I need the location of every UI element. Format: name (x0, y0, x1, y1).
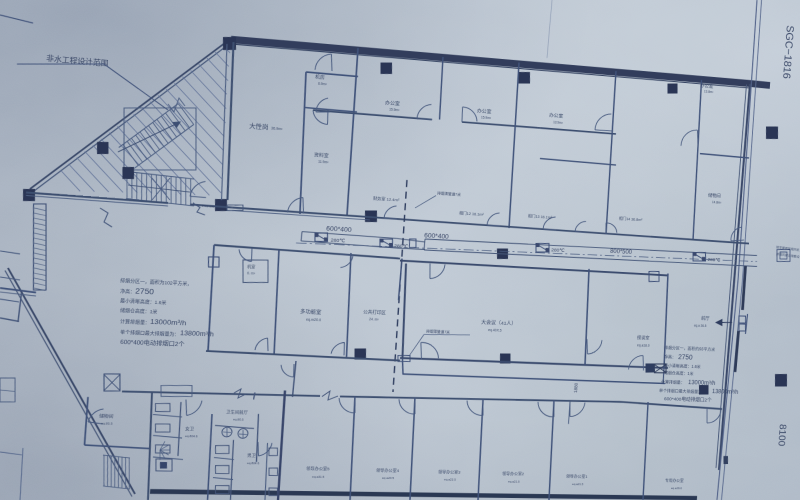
svg-text:机室: 机室 (247, 263, 256, 269)
svg-text:储物间: 储物间 (99, 413, 114, 420)
svg-text:接至屋面排烟风机: 接至屋面排烟风机 (776, 245, 800, 253)
svg-text:卫生间前厅: 卫生间前厅 (226, 409, 249, 416)
svg-text:eq.m20.0: eq.m20.0 (306, 318, 321, 322)
svg-text:大性岗: 大性岗 (249, 121, 269, 131)
svg-text:13000m³/h: 13000m³/h (150, 317, 187, 327)
svg-text:办公室: 办公室 (549, 111, 564, 119)
svg-text:领导办公室4: 领导办公室4 (376, 467, 400, 474)
svg-text:大会议（41人）: 大会议（41人） (481, 318, 517, 327)
svg-text:600*400: 600*400 (424, 233, 449, 241)
svg-text:280℃: 280℃ (394, 243, 409, 249)
svg-text:最小清晰高度：1.6米: 最小清晰高度：1.6米 (120, 298, 167, 307)
svg-text:储烟仓高度：1米: 储烟仓高度：1米 (664, 370, 694, 377)
svg-text:SGC−1816: SGC−1816 (781, 25, 796, 80)
svg-text:eq.804.6: eq.804.6 (247, 461, 260, 465)
svg-text:600*400电动排烟口2个: 600*400电动排烟口2个 (120, 338, 185, 348)
svg-text:eq.a23.5: eq.a23.5 (444, 478, 456, 482)
svg-text:13800m³/h: 13800m³/h (180, 330, 214, 338)
svg-text:6.9m²: 6.9m² (318, 82, 328, 87)
svg-text:280℃: 280℃ (707, 258, 720, 264)
svg-text:eq.a 36.5: eq.a 36.5 (694, 324, 707, 328)
svg-text:计算排烟量：: 计算排烟量： (661, 379, 685, 386)
svg-text:领导办公室2: 领导办公室2 (502, 470, 525, 477)
svg-text:13800m³/h: 13800m³/h (712, 389, 739, 396)
svg-text:eq.a21.5: eq.a21.5 (572, 482, 584, 486)
svg-text:非水工程设计范围: 非水工程设计范围 (46, 54, 109, 68)
svg-text:办公室: 办公室 (385, 98, 400, 107)
svg-text:相门12 16.1m²: 相门12 16.1m² (459, 210, 485, 217)
svg-text:13.9m²: 13.9m² (553, 120, 564, 124)
svg-text:13.8m²: 13.8m² (704, 90, 714, 94)
svg-text:领导办公室3: 领导办公室3 (438, 468, 461, 475)
svg-text:8100: 8100 (776, 424, 787, 446)
svg-text:男卫: 男卫 (247, 453, 257, 459)
svg-text:eq.80.5: eq.80.5 (101, 422, 113, 426)
svg-text:eq.80.5: eq.80.5 (233, 418, 244, 422)
svg-text:排烟分区一，面积约93平方米: 排烟分区一，面积约93平方米 (664, 345, 716, 353)
svg-text:接谈室: 接谈室 (637, 335, 650, 342)
svg-text:15.9m²: 15.9m² (481, 116, 492, 121)
svg-text:36.9m²: 36.9m² (271, 127, 283, 132)
svg-text:eq.40X.5: eq.40X.5 (488, 328, 502, 332)
svg-text:排烟清管道7米: 排烟清管道7米 (437, 191, 461, 197)
svg-text:储烟仓高度：1米: 储烟仓高度：1米 (120, 307, 158, 315)
svg-text:专用办公室: 专用办公室 (665, 477, 685, 484)
svg-text:公共打印区: 公共打印区 (363, 309, 387, 317)
svg-text:排烟薄管道7米: 排烟薄管道7米 (426, 329, 450, 335)
svg-text:24. m²: 24. m² (369, 318, 379, 322)
svg-text:领导办公室5: 领导办公室5 (306, 465, 331, 472)
svg-text:最小清晰高度：1.6米: 最小清晰高度：1.6米 (664, 362, 701, 370)
svg-text:计算排烟量：: 计算排烟量： (120, 318, 150, 326)
svg-text:800*500: 800*500 (610, 248, 633, 256)
svg-text:2750: 2750 (678, 353, 693, 362)
svg-text:相门13 16.1m²: 相门13 16.1m² (528, 212, 553, 219)
svg-text:6. m²: 6. m² (247, 271, 256, 275)
svg-text:280℃: 280℃ (330, 238, 345, 244)
svg-text:前厅: 前厅 (701, 315, 710, 322)
svg-text:排烟风管沿墙敷设: 排烟风管沿墙敷设 (776, 252, 800, 259)
svg-text:排烟分区一，面积为102平方米，: 排烟分区一，面积为102平方米， (120, 277, 192, 287)
svg-text:机房: 机房 (315, 73, 325, 80)
svg-text:净高：: 净高： (664, 354, 676, 361)
svg-text:储物间: 储物间 (708, 192, 721, 199)
svg-text:280℃: 280℃ (551, 248, 565, 254)
svg-text:14.8m²: 14.8m² (712, 200, 722, 204)
svg-text:1880: 1880 (573, 383, 579, 393)
svg-text:财务室 12.4m²: 财务室 12.4m² (373, 195, 400, 203)
svg-text:15.9m²: 15.9m² (389, 108, 400, 113)
svg-text:办公室: 办公室 (477, 106, 492, 114)
svg-text:领导办公室1: 领导办公室1 (566, 473, 588, 480)
svg-text:PVC-100: PVC-100 (202, 204, 215, 209)
svg-text:2750: 2750 (135, 287, 155, 297)
svg-text:eq.804.6: eq.804.6 (185, 434, 198, 438)
svg-text:女卫: 女卫 (185, 425, 195, 432)
svg-text:单个排烟口最大排烟量为：: 单个排烟口最大排烟量为： (120, 329, 180, 338)
svg-text:eq.a21.5: eq.a21.5 (508, 480, 520, 484)
svg-text:多功能室: 多功能室 (300, 307, 322, 316)
svg-text:净高：: 净高： (120, 288, 135, 296)
svg-text:eq.a29.6: eq.a29.6 (671, 486, 682, 490)
svg-text:600*400: 600*400 (326, 226, 352, 234)
svg-text:11.9m²: 11.9m² (318, 160, 329, 165)
svg-text:eq.a31.5: eq.a31.5 (312, 475, 325, 479)
svg-text:相门14 36.8m²: 相门14 36.8m² (619, 215, 643, 222)
svg-text:13000m³/h: 13000m³/h (688, 380, 716, 387)
svg-text:单个排烟口最大排烟量为：: 单个排烟口最大排烟量为： (659, 387, 706, 395)
svg-text:600*400电动排烟口2个: 600*400电动排烟口2个 (664, 395, 713, 404)
svg-text:资料室: 资料室 (314, 151, 329, 159)
svg-text:eq.a18.0: eq.a18.0 (637, 343, 650, 347)
svg-text:eq.a23.5: eq.a23.5 (382, 476, 395, 480)
